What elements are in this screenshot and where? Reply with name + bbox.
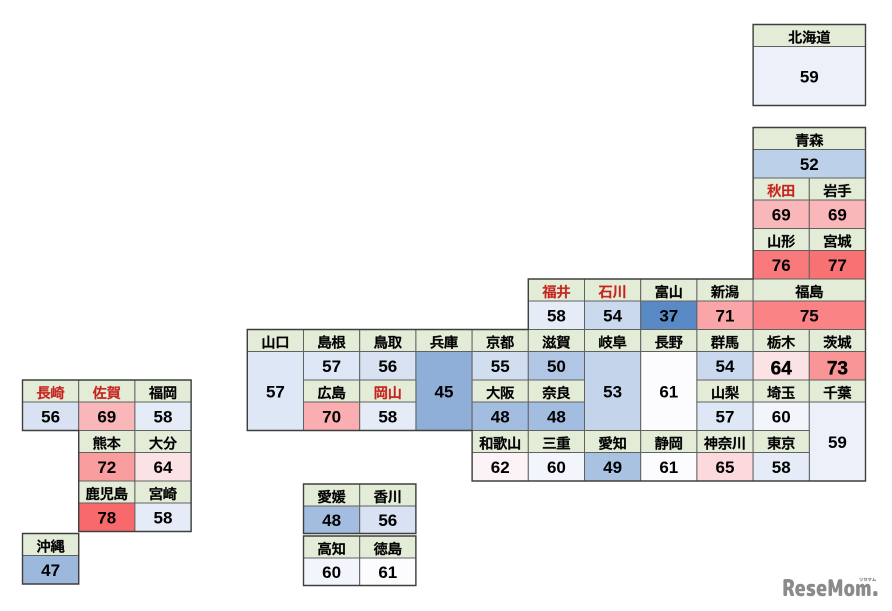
svg-text:72: 72 — [97, 458, 116, 477]
svg-text:60: 60 — [547, 458, 566, 477]
svg-text:58: 58 — [378, 408, 397, 427]
svg-text:64: 64 — [771, 359, 793, 380]
svg-text:56: 56 — [41, 408, 60, 427]
svg-text:60: 60 — [772, 408, 791, 427]
svg-text:53: 53 — [603, 383, 622, 402]
svg-text:48: 48 — [491, 408, 510, 427]
svg-text:59: 59 — [828, 433, 847, 452]
svg-text:57: 57 — [716, 408, 735, 427]
svg-text:55: 55 — [491, 357, 510, 376]
svg-text:54: 54 — [603, 307, 622, 326]
svg-text:73: 73 — [827, 359, 848, 380]
svg-text:58: 58 — [154, 509, 173, 528]
svg-text:71: 71 — [716, 307, 735, 326]
svg-text:78: 78 — [97, 509, 116, 528]
svg-text:56: 56 — [378, 357, 397, 376]
svg-text:57: 57 — [266, 383, 285, 402]
svg-text:69: 69 — [772, 206, 791, 225]
svg-text:58: 58 — [154, 408, 173, 427]
svg-text:48: 48 — [322, 511, 341, 530]
svg-text:56: 56 — [378, 511, 397, 530]
svg-text:61: 61 — [378, 563, 397, 582]
svg-text:37: 37 — [659, 307, 678, 326]
svg-text:49: 49 — [603, 458, 622, 477]
svg-text:52: 52 — [800, 155, 819, 174]
svg-text:58: 58 — [772, 458, 791, 477]
svg-text:59: 59 — [800, 68, 819, 87]
svg-text:75: 75 — [800, 307, 819, 326]
svg-text:69: 69 — [97, 408, 116, 427]
svg-text:47: 47 — [41, 561, 60, 580]
svg-text:77: 77 — [828, 256, 847, 275]
svg-text:65: 65 — [716, 458, 735, 477]
svg-text:70: 70 — [322, 408, 341, 427]
svg-text:58: 58 — [547, 307, 566, 326]
svg-text:62: 62 — [491, 458, 510, 477]
svg-text:69: 69 — [828, 206, 847, 225]
svg-text:45: 45 — [435, 383, 454, 402]
svg-text:61: 61 — [659, 458, 678, 477]
svg-text:57: 57 — [322, 357, 341, 376]
svg-text:60: 60 — [322, 563, 341, 582]
svg-text:54: 54 — [716, 357, 735, 376]
svg-text:76: 76 — [772, 256, 791, 275]
svg-text:48: 48 — [547, 408, 566, 427]
svg-text:61: 61 — [659, 383, 678, 402]
svg-text:64: 64 — [154, 458, 173, 477]
svg-text:50: 50 — [547, 357, 566, 376]
